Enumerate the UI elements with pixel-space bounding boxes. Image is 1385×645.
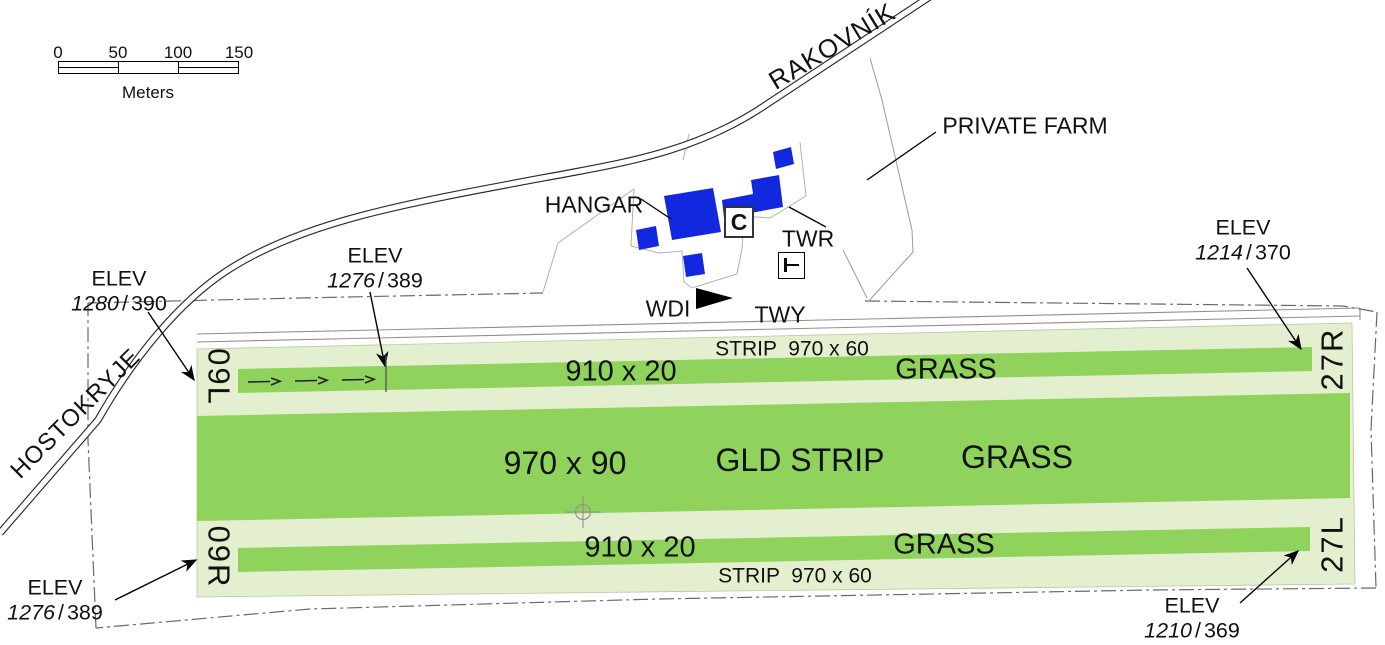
elev-west-road: ELEV 1280/390: [71, 266, 167, 315]
designator-27r: 27R: [1317, 328, 1348, 391]
signal-area-letter: C: [731, 209, 748, 236]
scale-segment: [119, 62, 179, 73]
signal-area-box: C: [724, 206, 754, 238]
hangar-building: [664, 188, 721, 240]
elev-title: ELEV: [327, 243, 423, 268]
designator-09r: 09R: [204, 526, 235, 589]
elev-thr-09l: ELEV 1276/389: [327, 243, 423, 292]
scale-segment: [179, 62, 238, 73]
landing-tee-box: [778, 252, 805, 279]
wdi-triangle-icon: [696, 288, 733, 309]
gld-strip-dims: 970 x 90: [504, 447, 627, 479]
scale-tick-0: 0: [53, 43, 62, 63]
small-building-west: [636, 226, 659, 250]
top-runway-surface: GRASS: [895, 356, 997, 385]
aerodrome-chart: 0 50 100 150 Meters RAKOVNÍK HOSTOKRYJE …: [0, 0, 1385, 645]
arrow-elev-09r: [115, 560, 196, 600]
scale-tick-50: 50: [109, 43, 128, 63]
elev-thr-09r: ELEV 1276/389: [7, 575, 103, 624]
buildings: [636, 147, 794, 309]
elev-thr-27r: ELEV 1214/370: [1195, 215, 1291, 264]
elev-thr-27l: ELEV 1210/369: [1144, 593, 1240, 642]
scale-tick-150: 150: [225, 43, 253, 63]
small-building-south: [683, 253, 705, 277]
twy-label: TWY: [754, 304, 805, 327]
private-farm-label: PRIVATE FARM: [942, 115, 1107, 138]
bottom-runway-dims: 910 x 20: [584, 534, 695, 563]
top-strip-label: STRIP 970 x 60: [715, 339, 869, 360]
wdi-label: WDI: [646, 298, 691, 321]
farm-boundary-line: [843, 58, 913, 302]
landing-tee-icon: [784, 264, 799, 267]
scale-bar-ruler: [58, 61, 239, 74]
elev-title: ELEV: [1144, 593, 1240, 618]
twr-leader: [789, 207, 826, 227]
scale-segment: [59, 62, 119, 73]
gld-strip-name: GLD STRIP: [716, 444, 885, 476]
elev-title: ELEV: [7, 575, 103, 600]
twr-label: TWR: [782, 228, 834, 251]
elev-title: ELEV: [1195, 215, 1291, 240]
gld-strip-surface: GRASS: [961, 441, 1073, 473]
designator-09l: 09L: [204, 348, 235, 406]
small-building-northeast: [773, 147, 794, 169]
scale-tick-100: 100: [164, 43, 192, 63]
designator-27l: 27L: [1317, 515, 1348, 573]
bottom-runway-surface: GRASS: [893, 531, 995, 560]
bottom-strip-label: STRIP 970 x 60: [718, 566, 872, 587]
hangar-label: HANGAR: [545, 194, 643, 217]
private-farm-leader: [867, 132, 936, 180]
top-runway-dims: 910 x 20: [565, 358, 676, 387]
elev-title: ELEV: [71, 266, 167, 291]
scale-unit-label: Meters: [122, 83, 174, 103]
